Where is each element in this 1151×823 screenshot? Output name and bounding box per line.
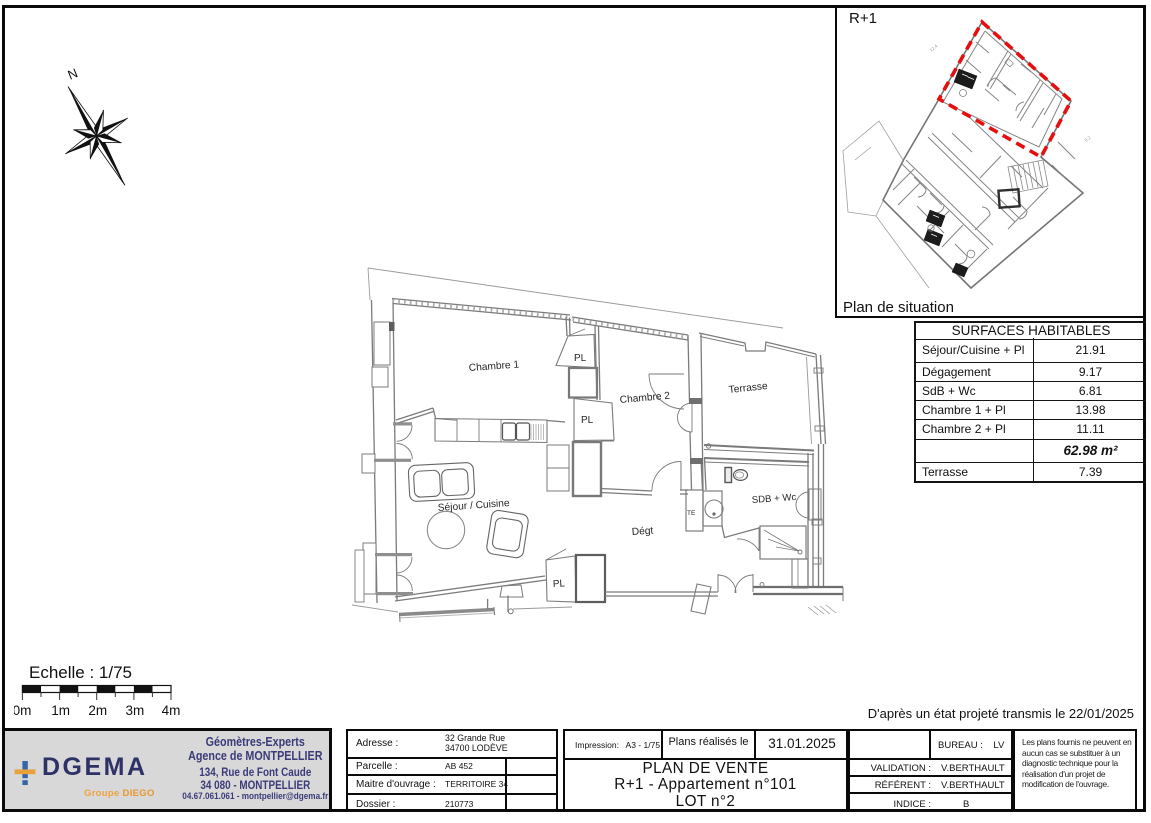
svg-text:1m: 1m (51, 703, 70, 718)
svg-text:PL: PL (574, 353, 587, 364)
svg-text:4m: 4m (162, 703, 181, 718)
svg-text:12.4: 12.4 (929, 43, 939, 53)
svg-text:Dégt: Dégt (631, 526, 653, 538)
svg-text:SDB + Wc: SDB + Wc (751, 492, 796, 506)
svg-text:Chambre 2: Chambre 2 (619, 391, 670, 406)
svg-text:3m: 3m (126, 703, 145, 718)
svg-text:Terrasse: Terrasse (728, 381, 768, 396)
svg-text:Séjour / Cuisine: Séjour / Cuisine (437, 498, 510, 514)
svg-text:2m: 2m (88, 703, 107, 718)
svg-text:0m: 0m (14, 703, 31, 718)
svg-text:TE: TE (687, 510, 696, 517)
svg-text:PL: PL (553, 578, 566, 590)
svg-text:PL: PL (581, 415, 594, 426)
svg-text:Chambre 1: Chambre 1 (468, 359, 519, 374)
svg-text:N: N (66, 65, 80, 82)
svg-text:8.2: 8.2 (1084, 135, 1092, 143)
